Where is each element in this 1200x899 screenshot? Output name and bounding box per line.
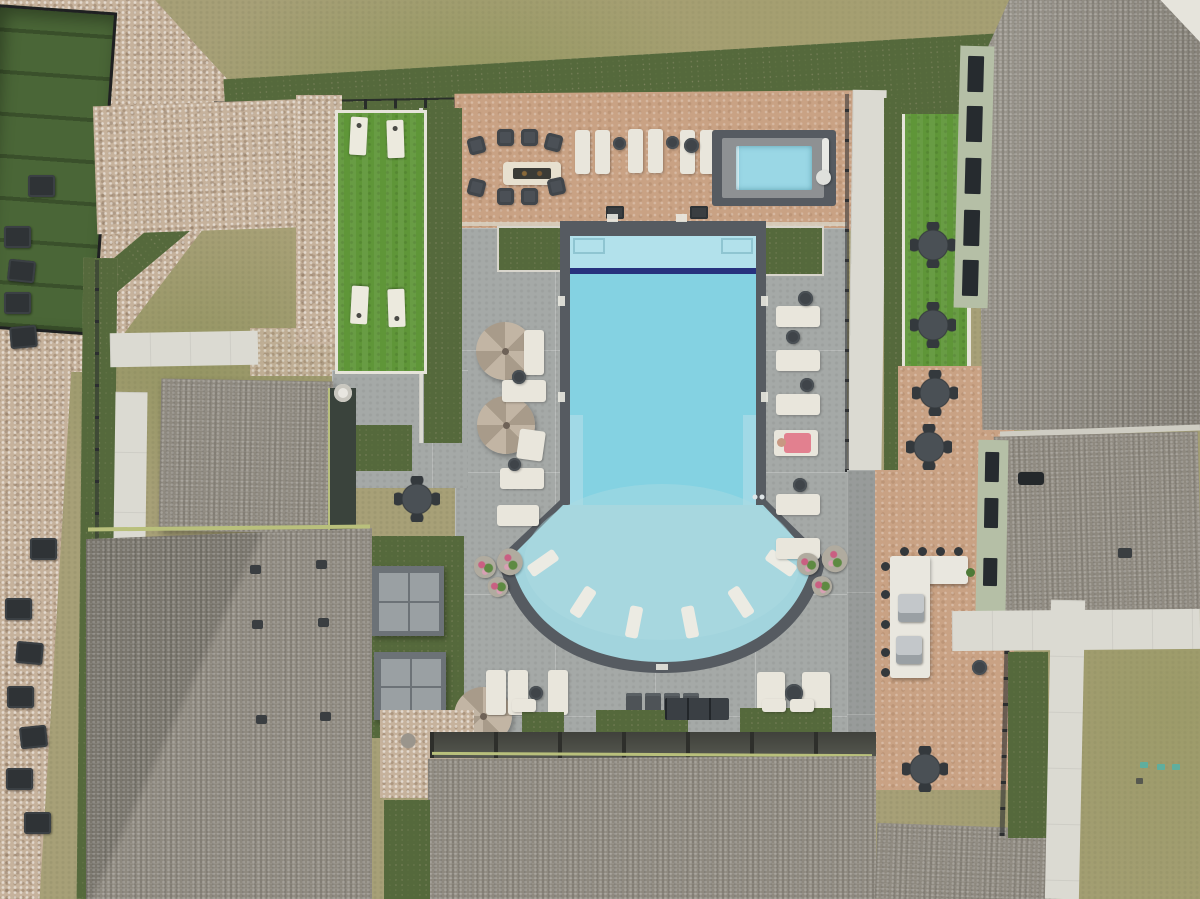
east-wall-windows-north: [954, 46, 995, 309]
side-table: [508, 458, 521, 471]
side-table: [684, 138, 699, 153]
patio-lounger: [762, 699, 786, 712]
equipment-unit: [7, 686, 34, 708]
planter: [797, 553, 819, 575]
sun-lounger: [776, 350, 820, 371]
pool-bench-west: [570, 415, 583, 512]
roof-vent: [256, 715, 267, 724]
pink-towel: [784, 433, 811, 453]
lap-lane-tile: [570, 268, 756, 274]
bar-stool: [881, 668, 890, 677]
sun-lounger: [776, 394, 820, 415]
sun-lounger: [575, 130, 590, 174]
fire-pit-burner: [513, 168, 551, 179]
cornhole-board: [387, 289, 405, 328]
grill: [896, 636, 922, 664]
utility-marker: [1157, 764, 1165, 770]
side-table: [793, 478, 807, 492]
fan-water-highlight: [524, 484, 800, 640]
equipment-unit: [4, 292, 31, 314]
patio-lounger: [790, 699, 814, 712]
fire-pit-chair: [521, 129, 538, 146]
window: [962, 260, 979, 296]
cornhole-board: [350, 286, 369, 325]
sun-lounger: [524, 330, 544, 375]
utility-marker-dark: [1136, 778, 1143, 784]
equipment-unit: [19, 725, 48, 750]
east-building-roof-south: [994, 431, 1200, 614]
dining-table-set: [902, 746, 948, 792]
sun-lounger: [776, 306, 820, 327]
entry-walk: [110, 331, 259, 368]
clubhouse-wing-roof: [159, 379, 334, 534]
roof-vent: [1018, 472, 1044, 485]
fire-pit-chair: [546, 176, 566, 196]
roof-vent: [250, 565, 261, 574]
roof-vent: [320, 712, 331, 721]
utility-marker: [1140, 762, 1148, 768]
side-table: [529, 686, 543, 700]
shrub: [966, 568, 975, 577]
equipment-unit: [4, 226, 31, 248]
dining-table-set: [906, 424, 952, 470]
sun-lounger: [628, 129, 643, 173]
courtyard-gravel-3: [250, 328, 342, 376]
ground-grass: [0, 0, 1200, 899]
gravel-gap-south: [384, 800, 430, 899]
patio-lounger: [512, 699, 536, 712]
equipment-unit: [28, 175, 55, 197]
sidewalk-southeast-v: [1045, 600, 1085, 899]
fire-pit-chair: [497, 129, 514, 146]
sun-lounger: [486, 670, 506, 715]
equipment-unit: [15, 641, 44, 665]
cabana: [372, 566, 444, 636]
side-table: [613, 137, 626, 150]
bar-stool: [881, 648, 890, 657]
planting-strip-southeast: [1008, 652, 1048, 838]
fire-pit-chair: [497, 188, 514, 205]
roof-vent: [318, 618, 329, 627]
east-building-roof-north: [978, 0, 1200, 430]
sun-lounger: [776, 494, 820, 515]
side-table: [786, 330, 800, 344]
grill: [898, 594, 924, 622]
person-sunbathing: [777, 438, 786, 447]
sun-lounger: [648, 129, 663, 173]
equipment-unit: [30, 538, 57, 560]
side-table: [972, 660, 987, 675]
window: [963, 210, 980, 246]
ada-lift-seat: [816, 170, 831, 185]
utility-marker: [1172, 764, 1180, 770]
skylight-windows: [665, 698, 729, 720]
bar-stool: [881, 590, 890, 599]
side-table: [666, 136, 679, 149]
window: [985, 452, 1000, 482]
sun-lounger: [497, 505, 539, 526]
dining-table-set: [912, 370, 958, 416]
fire-pit-chair: [521, 188, 538, 205]
sun-lounger: [516, 428, 546, 461]
sidewalk-east-pool: [847, 90, 886, 474]
sun-lounger: [500, 468, 544, 489]
dining-table-set: [910, 302, 956, 348]
cornhole-board: [386, 120, 404, 159]
bar-stool: [936, 547, 945, 556]
equipment-unit: [24, 812, 51, 834]
window: [965, 158, 982, 194]
spa-water: [736, 146, 812, 190]
bar-stool: [900, 547, 909, 556]
side-table: [798, 291, 813, 306]
bar-stool: [954, 547, 963, 556]
sun-lounger: [502, 380, 546, 402]
window: [966, 106, 983, 142]
walk-deck-southeast: [847, 470, 875, 742]
bar-stool: [918, 547, 927, 556]
window: [967, 56, 984, 92]
planting-bed-turf-east: [424, 108, 462, 443]
bar-stool: [881, 562, 890, 571]
cornhole-board: [349, 117, 368, 156]
planter: [474, 556, 496, 578]
dining-table-set: [394, 476, 440, 522]
equipment-unit: [7, 259, 36, 284]
sun-lounger: [548, 670, 568, 715]
equipment-unit: [9, 325, 38, 349]
window: [983, 558, 997, 586]
sun-lounger: [595, 130, 610, 174]
roof-vent-round: [334, 384, 352, 402]
bar-stool: [881, 620, 890, 629]
fence-east: [845, 94, 849, 472]
equipment-unit: [5, 598, 32, 620]
east-wall-windows-south: [976, 440, 1009, 612]
side-table: [800, 378, 814, 392]
roof-vent: [252, 620, 263, 629]
equipment-unit: [6, 768, 33, 790]
side-table: [512, 370, 526, 384]
center-building-roof: [428, 756, 876, 899]
clubhouse-wing-wall: [328, 388, 356, 534]
window: [984, 498, 999, 528]
pool-water: [570, 236, 756, 512]
roof-vent: [1118, 548, 1132, 558]
roof-vent: [316, 560, 327, 569]
dining-table-set: [910, 222, 956, 268]
